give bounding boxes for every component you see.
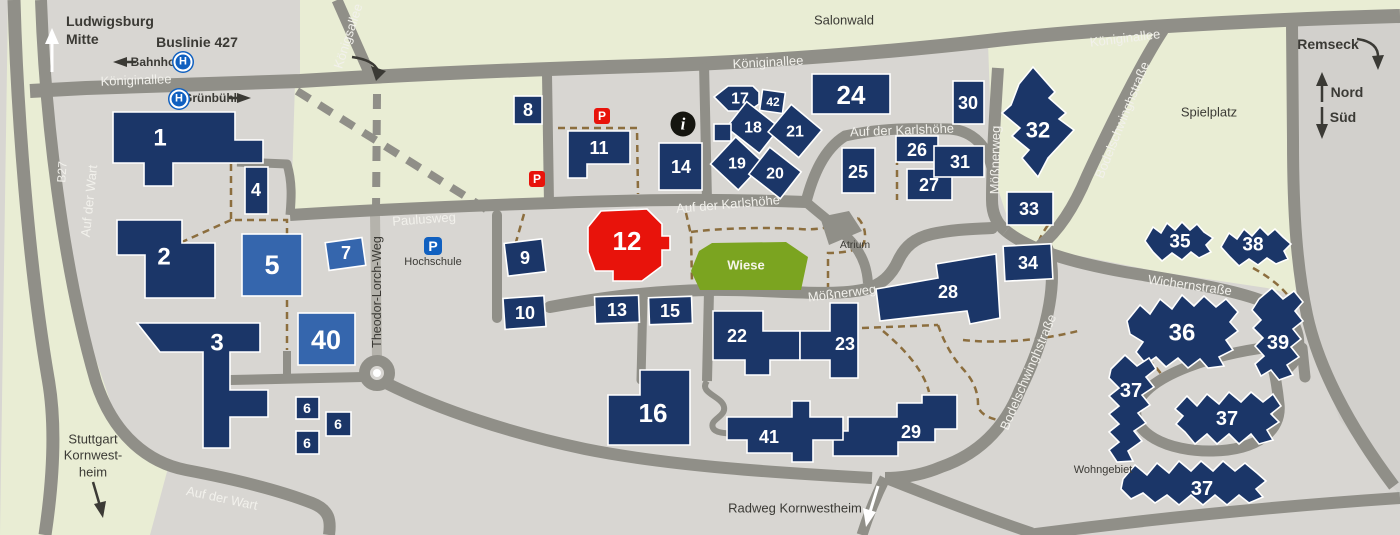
building-26: 26 xyxy=(896,136,938,162)
building-14: 14 xyxy=(659,143,702,190)
label-ludwigsburg-mitte: Ludwigsburg Mitte xyxy=(66,12,154,48)
building-33: 33 xyxy=(1007,192,1053,225)
building-40: 40 xyxy=(298,313,355,365)
building-number: 31 xyxy=(950,152,970,172)
building-number: 22 xyxy=(727,326,747,346)
label-atrium: Atrium xyxy=(840,239,870,251)
building-number: 30 xyxy=(958,93,978,113)
building-8: 8 xyxy=(514,96,542,124)
bus-stop-bahnhof-icon: H xyxy=(174,53,193,72)
building-number: 27 xyxy=(919,175,939,195)
info-icon: i xyxy=(671,112,696,137)
label-remseck: Remseck xyxy=(1297,36,1359,52)
label-gruenbuehl: Grünbühl xyxy=(183,91,237,105)
building-10: 10 xyxy=(503,296,546,330)
building-4: 4 xyxy=(245,167,268,214)
building-number: 24 xyxy=(837,80,866,110)
building-number: 35 xyxy=(1169,232,1191,253)
label-radweg-kornwestheim: Radweg Kornwestheim xyxy=(728,501,862,516)
parking-icon-west: P xyxy=(529,171,545,187)
koenigsallee-field xyxy=(291,73,551,213)
building-number: 13 xyxy=(607,300,627,320)
building-6: 6 xyxy=(326,412,351,436)
parking-hochschule-icon: P xyxy=(424,237,442,255)
road-between-13-15 xyxy=(641,295,643,380)
building-31: 31 xyxy=(934,146,984,177)
building-number: 26 xyxy=(907,140,927,160)
street-moessnerweg-vertical: Mößnerweg xyxy=(987,126,1003,195)
building-12: 12 xyxy=(588,209,670,281)
building-7: 7 xyxy=(325,238,366,271)
label-wohngebiet: Wohngebiet xyxy=(1074,464,1133,476)
building-number: 3 xyxy=(210,330,223,357)
label-nord: Nord xyxy=(1331,84,1364,100)
building-13: 13 xyxy=(595,295,640,324)
building-number: 6 xyxy=(334,416,342,432)
label-hochschule: Hochschule xyxy=(404,256,461,268)
building-number: 41 xyxy=(759,427,779,447)
building-number: 7 xyxy=(341,243,351,263)
building-number: 40 xyxy=(311,325,341,355)
roundabout xyxy=(365,361,390,386)
label-stuttgart-line3: heim xyxy=(64,464,123,480)
building-number: 29 xyxy=(901,422,921,442)
label-stuttgart-line2: Kornwest- xyxy=(64,448,123,464)
building-shape xyxy=(714,124,731,141)
building-number: 28 xyxy=(938,282,958,302)
building-9: 9 xyxy=(504,239,546,276)
building-34: 34 xyxy=(1003,244,1053,281)
building-number: 39 xyxy=(1267,332,1289,354)
label-ludwigsburg-line1: Ludwigsburg xyxy=(66,12,154,30)
building-number: 6 xyxy=(303,400,311,416)
building-6: 6 xyxy=(296,397,319,419)
building-number: 33 xyxy=(1019,199,1039,219)
building-number: 21 xyxy=(786,124,804,141)
building-number: 37 xyxy=(1120,380,1142,402)
building-number: 25 xyxy=(848,162,868,182)
building-number: 1 xyxy=(153,125,166,152)
building-number: 15 xyxy=(660,301,680,321)
building-number: 16 xyxy=(639,398,668,428)
label-sued: Süd xyxy=(1330,109,1356,125)
label-spielplatz: Spielplatz xyxy=(1181,105,1237,120)
street-b27: B27 xyxy=(54,161,69,183)
street-theodor-lorch-weg: Theodor-Lorch-Weg xyxy=(370,236,384,348)
building-number: 12 xyxy=(613,226,642,256)
building-number: 4 xyxy=(251,180,261,200)
label-buslinie: Buslinie 427 xyxy=(156,34,238,50)
label-salonwald: Salonwald xyxy=(814,13,874,28)
building-number: 18 xyxy=(744,120,762,137)
label-bahnhof: Bahnhof xyxy=(131,55,180,69)
map-base-layer: 1234566678910111213141516171819202122232… xyxy=(0,0,1400,535)
building-number: 42 xyxy=(766,95,780,109)
building-block xyxy=(714,124,731,141)
building-number: 20 xyxy=(766,166,784,183)
building-number: 23 xyxy=(835,334,855,354)
building-number: 32 xyxy=(1026,118,1050,143)
building-number: 34 xyxy=(1018,253,1038,273)
building-number: 2 xyxy=(157,244,170,271)
road-vertical-center xyxy=(704,63,707,201)
building-15: 15 xyxy=(649,296,693,324)
road-east-stub xyxy=(1302,348,1305,377)
label-ludwigsburg-line2: Mitte xyxy=(66,30,154,48)
label-stuttgart-line1: Stuttgart xyxy=(64,432,123,448)
building-number: 38 xyxy=(1242,235,1263,256)
road-vertical-22 xyxy=(707,291,709,381)
building-number: 14 xyxy=(671,157,691,177)
building-30: 30 xyxy=(953,81,984,124)
bus-stop-gruenbuehl-icon: H xyxy=(170,90,189,109)
building-25: 25 xyxy=(842,148,875,193)
building-number: 9 xyxy=(520,248,530,268)
building-number: 36 xyxy=(1169,320,1196,347)
label-stuttgart-kornwestheim: Stuttgart Kornwest- heim xyxy=(64,432,123,481)
building-number: 8 xyxy=(523,100,533,120)
building-42: 42 xyxy=(760,90,786,114)
campus-map: 1234566678910111213141516171819202122232… xyxy=(0,0,1400,535)
road-stub-building3 xyxy=(231,377,363,380)
parking-icon-north: P xyxy=(594,108,610,124)
label-wiese: Wiese xyxy=(727,258,764,273)
building-5: 5 xyxy=(242,234,302,296)
building-number: 19 xyxy=(728,156,746,173)
building-24: 24 xyxy=(812,74,890,114)
building-number: 11 xyxy=(589,138,608,158)
building-number: 5 xyxy=(264,250,279,280)
building-6: 6 xyxy=(296,431,319,454)
building-number: 10 xyxy=(515,303,535,323)
street-koeniginallee-west: Königinallee xyxy=(100,71,171,88)
building-number: 37 xyxy=(1216,408,1238,430)
building-number: 37 xyxy=(1191,478,1213,500)
building-number: 6 xyxy=(303,435,311,451)
road-vertical-west xyxy=(547,74,549,204)
